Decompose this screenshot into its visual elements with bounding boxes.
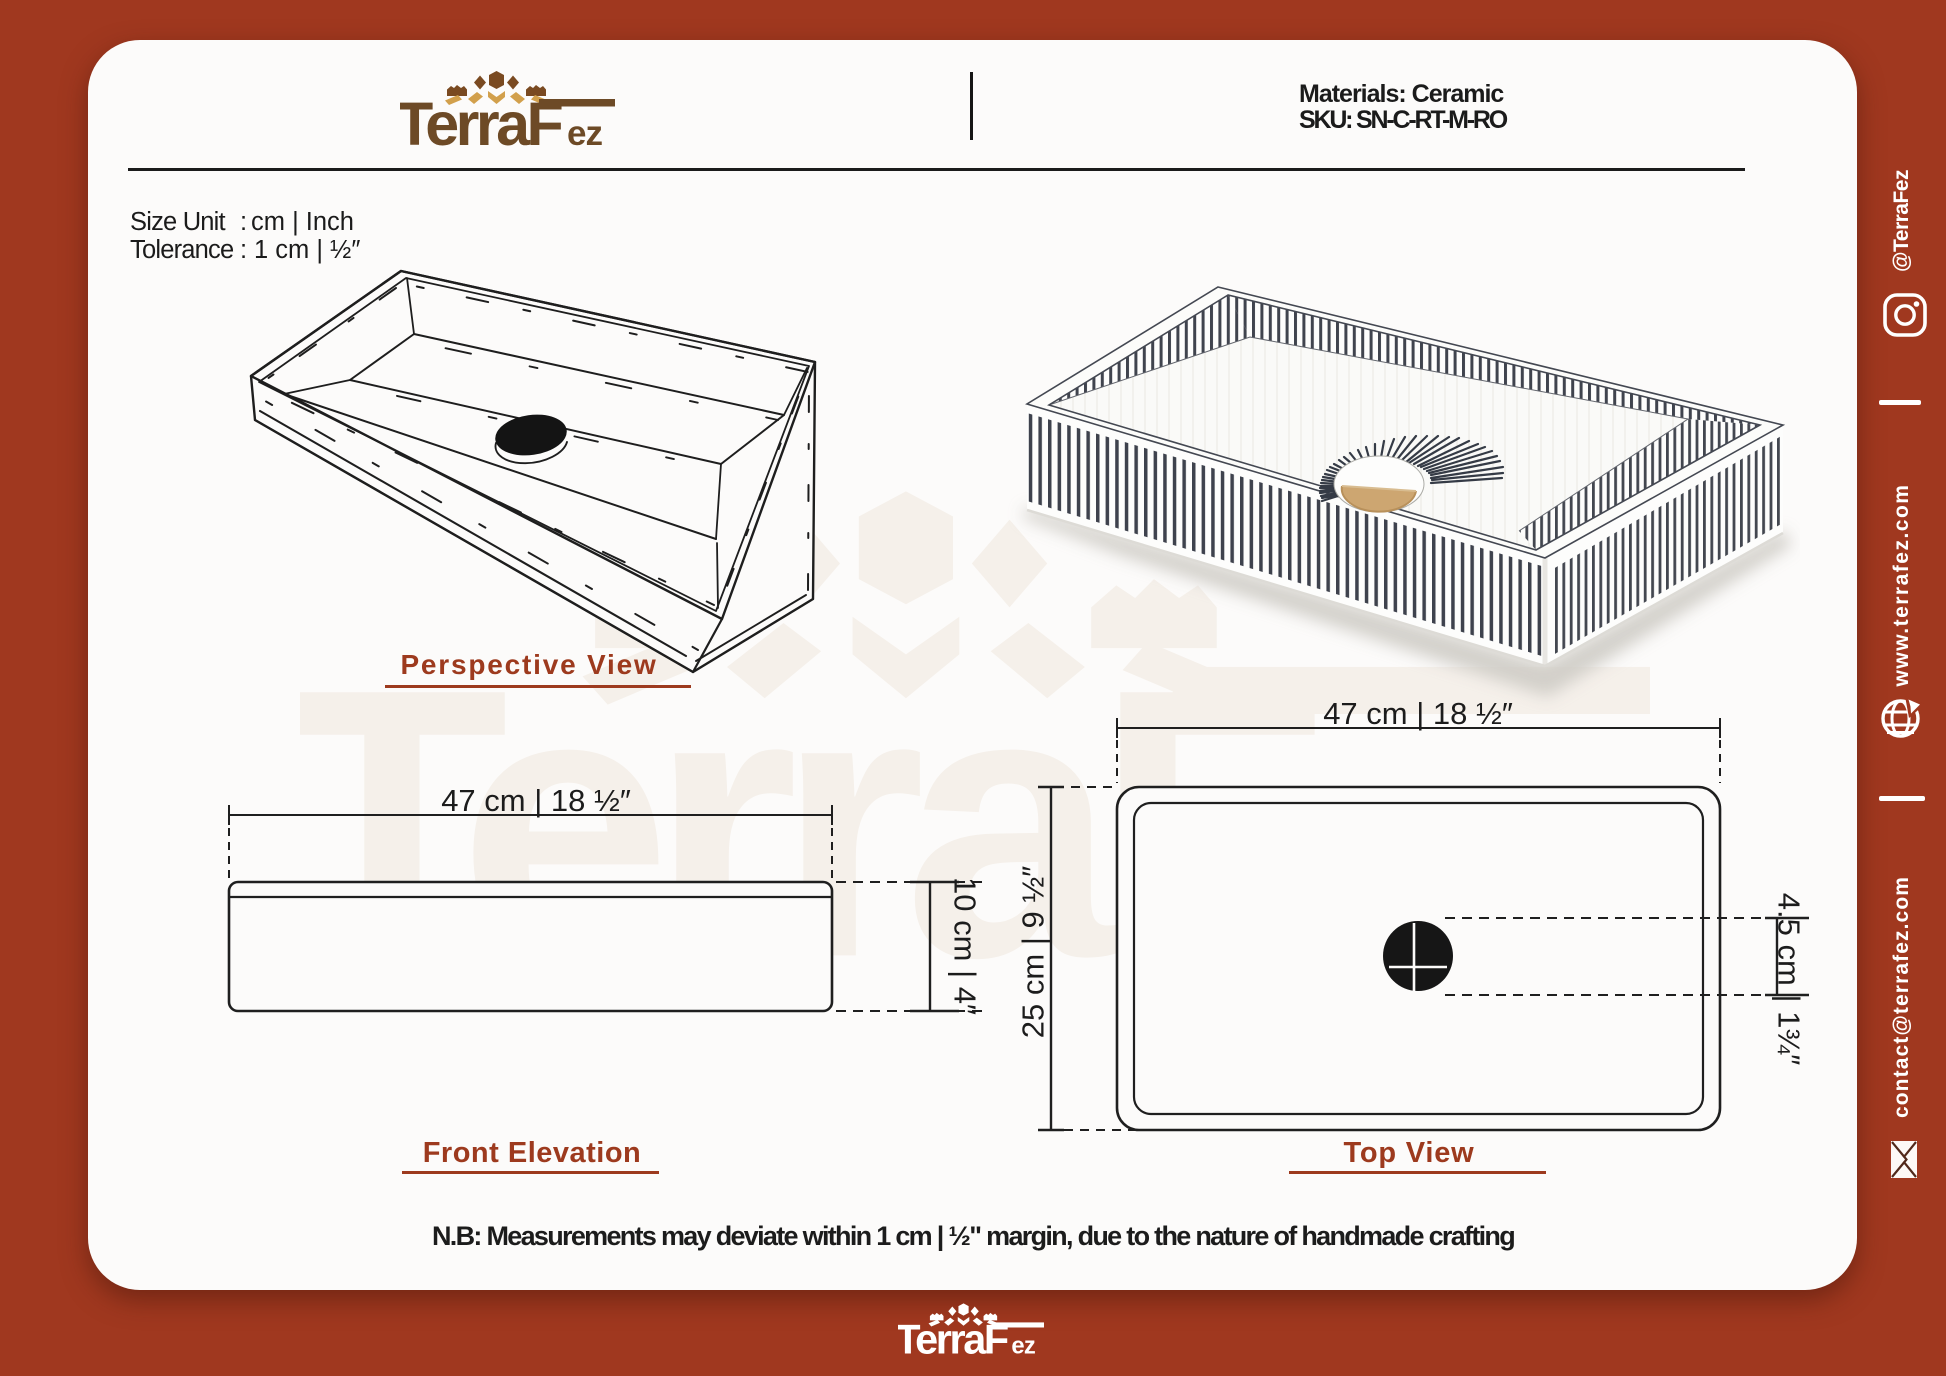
svg-text:TerraF: TerraF xyxy=(400,90,563,158)
svg-text:ez: ez xyxy=(567,114,602,153)
